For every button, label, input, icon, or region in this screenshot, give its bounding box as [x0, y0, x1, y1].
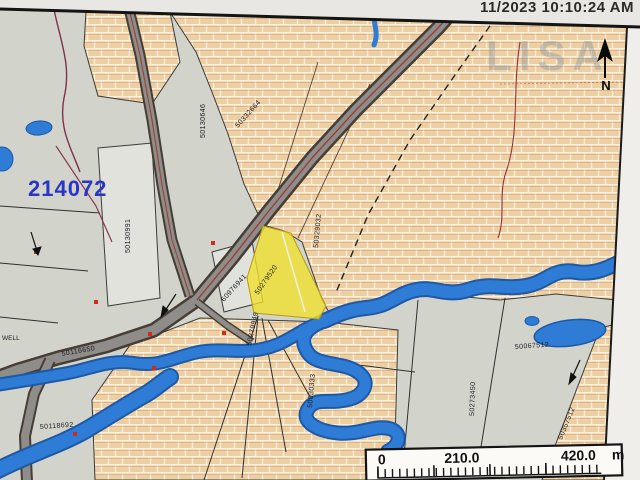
north-label: N: [601, 78, 610, 93]
building-marker: [152, 366, 156, 370]
map-viewer-screenshot: 50130991 50130646 50332664 50329032 5027…: [0, 0, 640, 480]
parcel-id: 50273450: [469, 381, 477, 416]
parcel-id: 50130646: [200, 104, 207, 138]
scalebar: 0 210.0 420.0 m: [366, 444, 625, 480]
well-label: WELL: [2, 335, 20, 342]
scalebar-mid: 210.0: [444, 449, 480, 466]
building-marker: [148, 332, 152, 336]
building-marker: [73, 432, 77, 436]
map-content: 50130991 50130646 50332664 50329032 5027…: [0, 0, 640, 480]
pond-small: [525, 317, 539, 326]
building-marker: [211, 241, 215, 245]
scalebar-end: 420.0: [561, 447, 597, 464]
watermark-text: LISA: [486, 32, 610, 79]
parcel-id: 50130991: [125, 219, 132, 253]
map-canvas[interactable]: 50130991 50130646 50332664 50329032 5027…: [0, 0, 640, 480]
building-marker: [94, 300, 98, 304]
scalebar-start: 0: [378, 451, 386, 467]
selected-pid-label: 214072: [28, 176, 107, 201]
timestamp: 11/2023 10:10:24 AM: [480, 0, 634, 16]
scalebar-unit: m: [612, 446, 625, 462]
building-marker: [222, 331, 226, 335]
